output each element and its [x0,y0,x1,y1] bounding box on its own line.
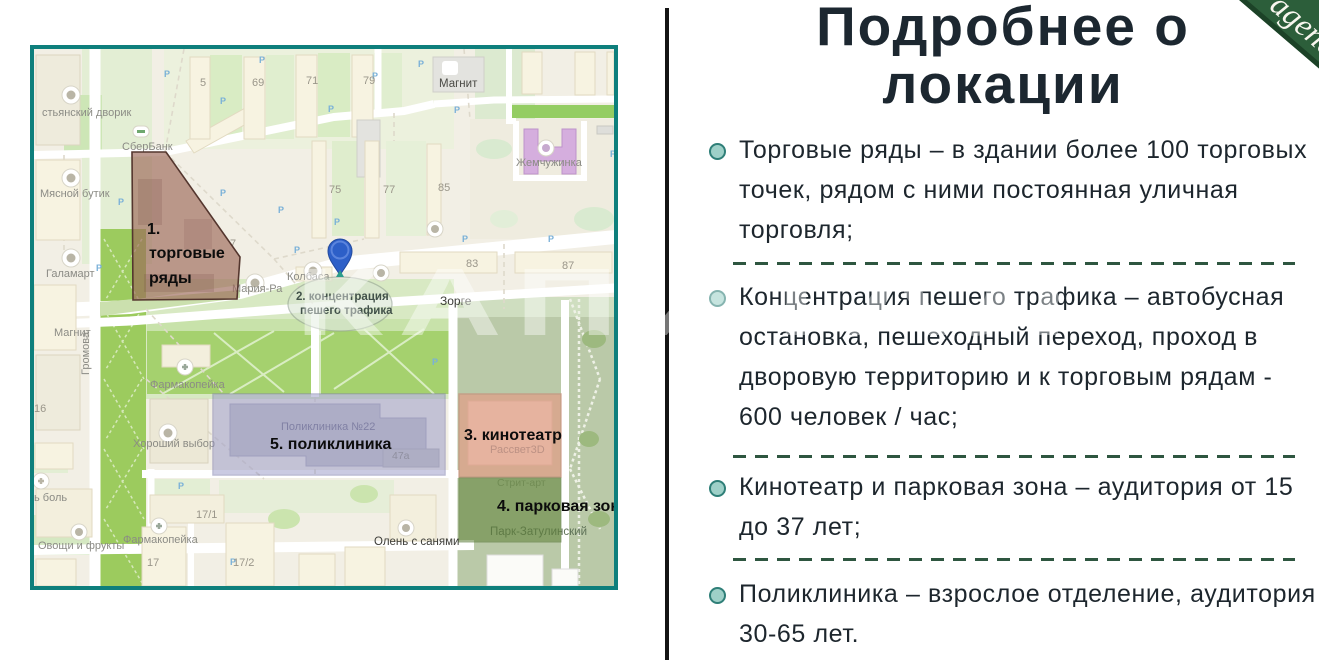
svg-text:75: 75 [329,184,341,196]
svg-text:1.: 1. [147,221,160,238]
svg-text:Галамарт: Галамарт [46,268,95,280]
svg-text:Жемчужинка: Жемчужинка [516,157,583,169]
svg-text:P: P [334,217,340,227]
svg-text:71: 71 [306,75,318,87]
svg-text:P: P [418,59,424,69]
svg-text:17/1: 17/1 [196,509,217,521]
svg-text:P: P [278,205,284,215]
svg-text:17/2: 17/2 [233,557,254,569]
svg-text:Олень с санями: Олень с санями [374,536,459,548]
svg-text:P: P [178,481,184,491]
svg-text:85: 85 [438,182,450,194]
svg-text:P: P [96,263,102,273]
svg-text:торговые: торговые [149,245,225,262]
svg-text:3. кинотеатр: 3. кинотеатр [464,427,562,444]
svg-text:79: 79 [363,75,375,87]
svg-text:Мясной бутик: Мясной бутик [40,188,110,200]
svg-text:P: P [220,96,226,106]
svg-text:69: 69 [252,77,264,89]
svg-text:Рассвет3D: Рассвет3D [490,444,545,456]
svg-text:Мария-Ра: Мария-Ра [232,283,283,295]
svg-text:Фармакопейка: Фармакопейка [123,534,199,546]
svg-text:P: P [328,104,334,114]
svg-text:P: P [462,234,468,244]
svg-text:P: P [164,69,170,79]
svg-text:5: 5 [200,77,206,89]
svg-text:5. поликлиника: 5. поликлиника [270,436,392,453]
svg-text:Магнит: Магнит [439,78,478,90]
svg-text:P: P [432,357,438,367]
svg-text:P: P [259,55,265,65]
svg-text:P: P [454,105,460,115]
svg-text:16: 16 [34,403,46,415]
svg-text:Поликлиника №22: Поликлиника №22 [281,421,375,433]
svg-text:ряды: ряды [149,270,192,287]
svg-text:P: P [118,197,124,207]
svg-text:P: P [548,234,554,244]
svg-text:4. парковая зон: 4. парковая зон [497,498,614,515]
svg-text:Громова: Громова [80,331,92,375]
svg-text:Фармакопейка: Фармакопейка [150,379,226,391]
svg-text:17: 17 [147,557,159,569]
svg-text:47а: 47а [392,450,410,462]
svg-text:P: P [610,149,614,159]
svg-text:77: 77 [383,184,395,196]
svg-text:Хороший выбор: Хороший выбор [133,438,215,450]
svg-text:ь боль: ь боль [34,492,67,504]
svg-text:стьянский дворик: стьянский дворик [42,107,131,119]
svg-text:P: P [220,188,226,198]
svg-text:Овощи и фрукты: Овощи и фрукты [38,540,124,552]
